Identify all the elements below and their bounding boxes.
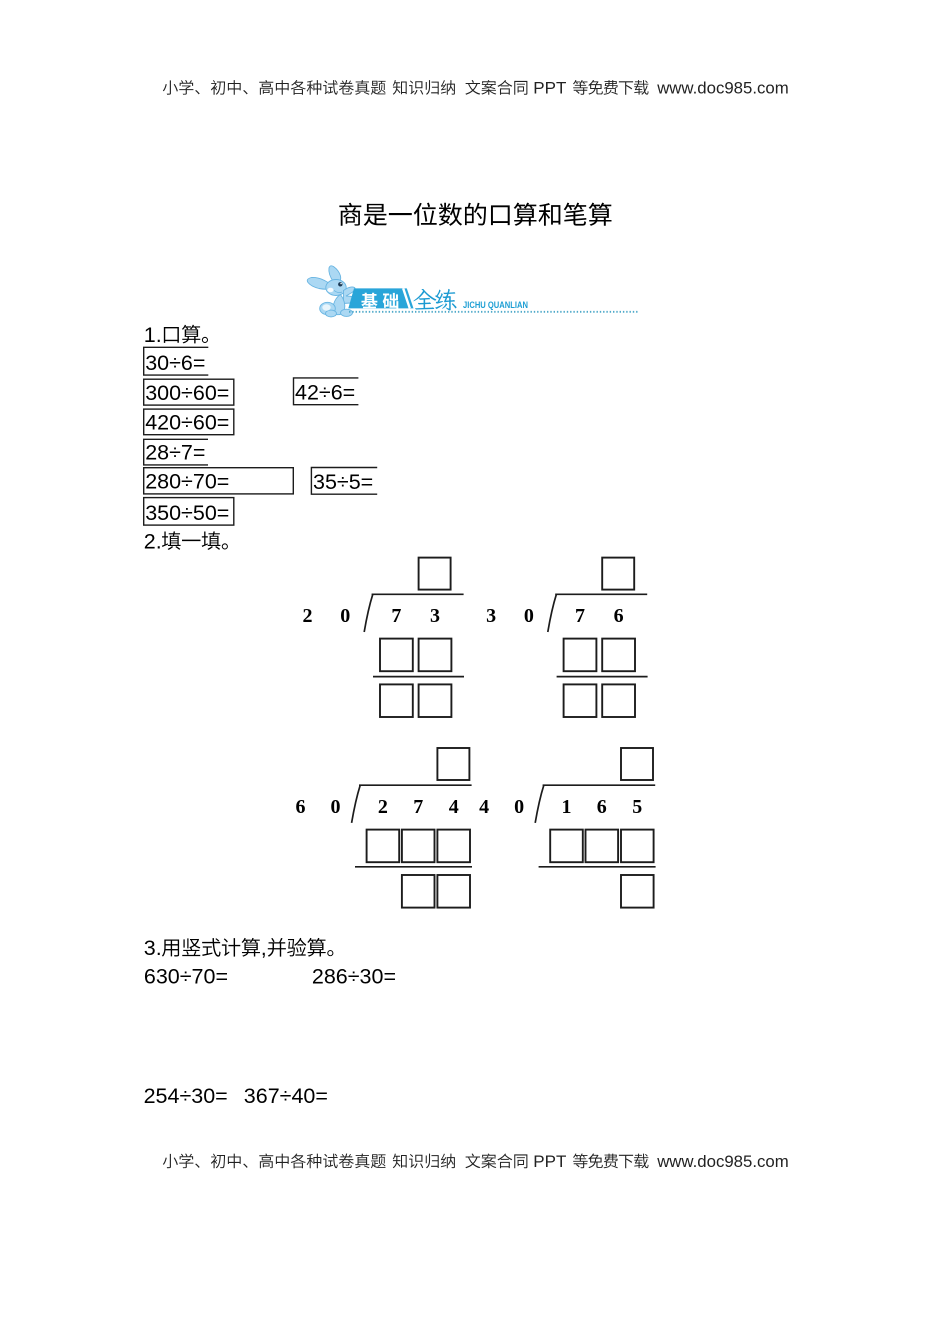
svg-text:30÷6=: 30÷6=: [145, 351, 205, 375]
svg-text:7: 7: [391, 605, 401, 627]
svg-text:28÷7=: 28÷7=: [145, 441, 205, 465]
svg-text:3: 3: [430, 605, 440, 627]
svg-text:2: 2: [303, 605, 313, 627]
svg-text:0: 0: [514, 796, 524, 818]
svg-text:420÷60=: 420÷60=: [145, 411, 229, 435]
svg-text:350÷50=: 350÷50=: [145, 501, 229, 525]
svg-text:JICHU QUANLIAN: JICHU QUANLIAN: [463, 299, 528, 310]
svg-text:1.: 1.: [144, 323, 162, 347]
svg-text:4: 4: [449, 796, 459, 818]
svg-text:1: 1: [562, 796, 572, 818]
svg-text:7: 7: [575, 605, 585, 627]
svg-text:6: 6: [296, 796, 306, 818]
svg-text:www.doc985.com: www.doc985.com: [656, 79, 789, 98]
svg-text:254÷30=: 254÷30=: [144, 1084, 228, 1108]
svg-text:280÷70=: 280÷70=: [145, 470, 229, 494]
svg-text:7: 7: [413, 796, 423, 818]
svg-text:35÷5=: 35÷5=: [313, 470, 373, 494]
svg-text:286÷30=: 286÷30=: [312, 965, 396, 989]
svg-text:0: 0: [524, 605, 534, 627]
svg-text:5: 5: [632, 796, 642, 818]
svg-text:PPT: PPT: [533, 1152, 566, 1171]
svg-text:www.doc985.com: www.doc985.com: [656, 1152, 789, 1171]
svg-text:4: 4: [479, 796, 489, 818]
svg-text:0: 0: [340, 605, 350, 627]
svg-text:630÷70=: 630÷70=: [144, 965, 228, 989]
svg-text:6: 6: [597, 796, 607, 818]
svg-text:2.: 2.: [144, 529, 162, 553]
svg-text:3.: 3.: [144, 936, 162, 960]
svg-text:6: 6: [614, 605, 624, 627]
svg-text:367÷40=: 367÷40=: [244, 1084, 328, 1108]
svg-text:PPT: PPT: [533, 79, 566, 98]
svg-text:2: 2: [378, 796, 388, 818]
svg-text:,: ,: [261, 936, 267, 960]
svg-text:42÷6=: 42÷6=: [295, 381, 355, 405]
svg-text:300÷60=: 300÷60=: [145, 381, 229, 405]
svg-text:0: 0: [331, 796, 341, 818]
svg-text:3: 3: [486, 605, 496, 627]
